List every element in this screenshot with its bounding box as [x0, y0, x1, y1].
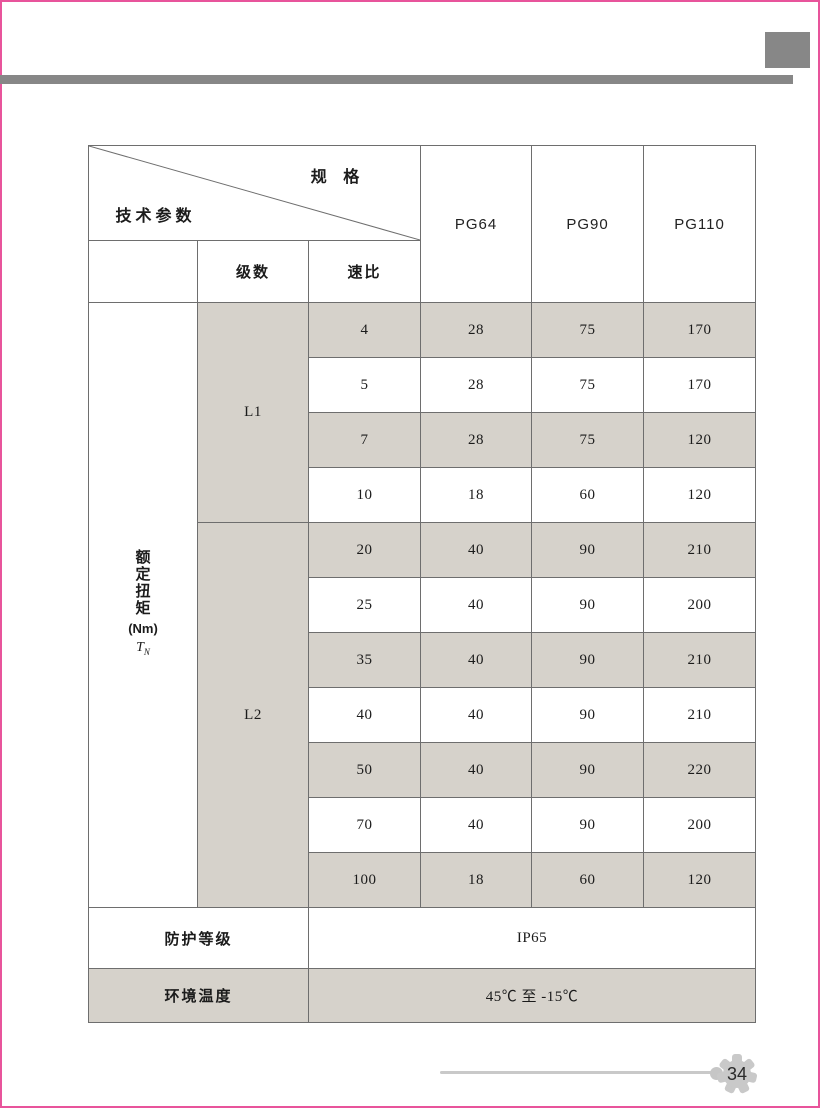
pg110-cell: 210 [644, 633, 756, 688]
torque-unit: (Nm) [128, 620, 158, 637]
temperature-row: 环境温度 45℃ 至 -15℃ [89, 969, 756, 1023]
pg110-cell: 120 [644, 413, 756, 468]
spec-header-label: 规 格 [311, 163, 365, 187]
column-header-pg110: PG110 [644, 146, 756, 303]
ratio-cell: 4 [309, 303, 421, 358]
pg90-cell: 75 [532, 303, 644, 358]
torque-label-cell: 额 定 扭 矩 (Nm) TN [89, 303, 198, 908]
stage-header: 级数 [198, 241, 309, 303]
pg64-cell: 28 [421, 303, 532, 358]
ratio-cell: 40 [309, 688, 421, 743]
top-divider-bar [0, 75, 793, 84]
pg64-cell: 40 [421, 523, 532, 578]
pg90-cell: 75 [532, 358, 644, 413]
pg90-cell: 75 [532, 413, 644, 468]
pg64-cell: 28 [421, 413, 532, 468]
pg90-cell: 90 [532, 798, 644, 853]
column-header-pg90: PG90 [532, 146, 644, 303]
tech-param-label: 技术参数 [115, 202, 195, 226]
page-number: 34 [714, 1051, 760, 1097]
protection-row: 防护等级 IP65 [89, 908, 756, 969]
torque-symbol: TN [136, 639, 150, 661]
ratio-cell: 35 [309, 633, 421, 688]
ratio-cell: 70 [309, 798, 421, 853]
pg110-cell: 220 [644, 743, 756, 798]
pg64-cell: 40 [421, 743, 532, 798]
pg110-cell: 120 [644, 853, 756, 908]
pg90-cell: 90 [532, 743, 644, 798]
corner-square [765, 32, 810, 68]
ratio-cell: 100 [309, 853, 421, 908]
temperature-value: 45℃ 至 -15℃ [309, 969, 756, 1023]
torque-label: 额 定 扭 矩 (Nm) TN [89, 549, 197, 661]
ratio-cell: 7 [309, 413, 421, 468]
diagonal-header-cell: 规 格 技术参数 [89, 146, 421, 241]
pg90-cell: 90 [532, 688, 644, 743]
stage-cell-l2: L2 [198, 523, 309, 908]
pg64-cell: 28 [421, 358, 532, 413]
header-row-1: 规 格 技术参数 PG64 PG90 PG110 [89, 146, 756, 241]
empty-header-cell [89, 241, 198, 303]
pg90-cell: 60 [532, 468, 644, 523]
pg64-cell: 18 [421, 468, 532, 523]
pg110-cell: 210 [644, 523, 756, 578]
pg64-cell: 40 [421, 798, 532, 853]
ratio-cell: 50 [309, 743, 421, 798]
pg90-cell: 90 [532, 523, 644, 578]
table-row: 额 定 扭 矩 (Nm) TN L1 4 28 75 170 [89, 303, 756, 358]
pg110-cell: 120 [644, 468, 756, 523]
protection-label: 防护等级 [89, 908, 309, 969]
footer-rule [440, 1071, 716, 1074]
pg90-cell: 60 [532, 853, 644, 908]
page-number-badge: 34 [714, 1051, 760, 1097]
pg64-cell: 18 [421, 853, 532, 908]
pg64-cell: 40 [421, 633, 532, 688]
temperature-label: 环境温度 [89, 969, 309, 1023]
pg110-cell: 200 [644, 578, 756, 633]
column-header-pg64: PG64 [421, 146, 532, 303]
ratio-cell: 20 [309, 523, 421, 578]
pg64-cell: 40 [421, 578, 532, 633]
pg90-cell: 90 [532, 578, 644, 633]
pg110-cell: 210 [644, 688, 756, 743]
ratio-cell: 25 [309, 578, 421, 633]
pg110-cell: 170 [644, 303, 756, 358]
spec-table: 规 格 技术参数 PG64 PG90 PG110 级数 速比 额 定 [88, 145, 756, 1023]
pg110-cell: 170 [644, 358, 756, 413]
ratio-cell: 5 [309, 358, 421, 413]
pg110-cell: 200 [644, 798, 756, 853]
stage-cell-l1: L1 [198, 303, 309, 523]
pg64-cell: 40 [421, 688, 532, 743]
catalog-page: 规 格 技术参数 PG64 PG90 PG110 级数 速比 额 定 [0, 0, 820, 1112]
ratio-cell: 10 [309, 468, 421, 523]
protection-value: IP65 [309, 908, 756, 969]
pg90-cell: 90 [532, 633, 644, 688]
ratio-header: 速比 [309, 241, 421, 303]
